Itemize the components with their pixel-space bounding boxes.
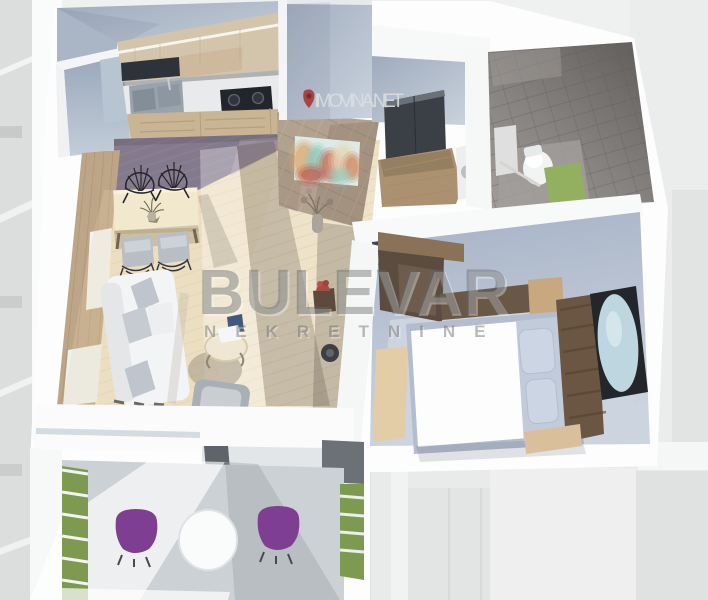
svg-text:BULEVAR: BULEVAR	[198, 256, 510, 328]
svg-text:NEKRETNINE: NEKRETNINE	[204, 322, 505, 341]
svg-text:IMOVINA.NET: IMOVINA.NET	[314, 91, 404, 112]
